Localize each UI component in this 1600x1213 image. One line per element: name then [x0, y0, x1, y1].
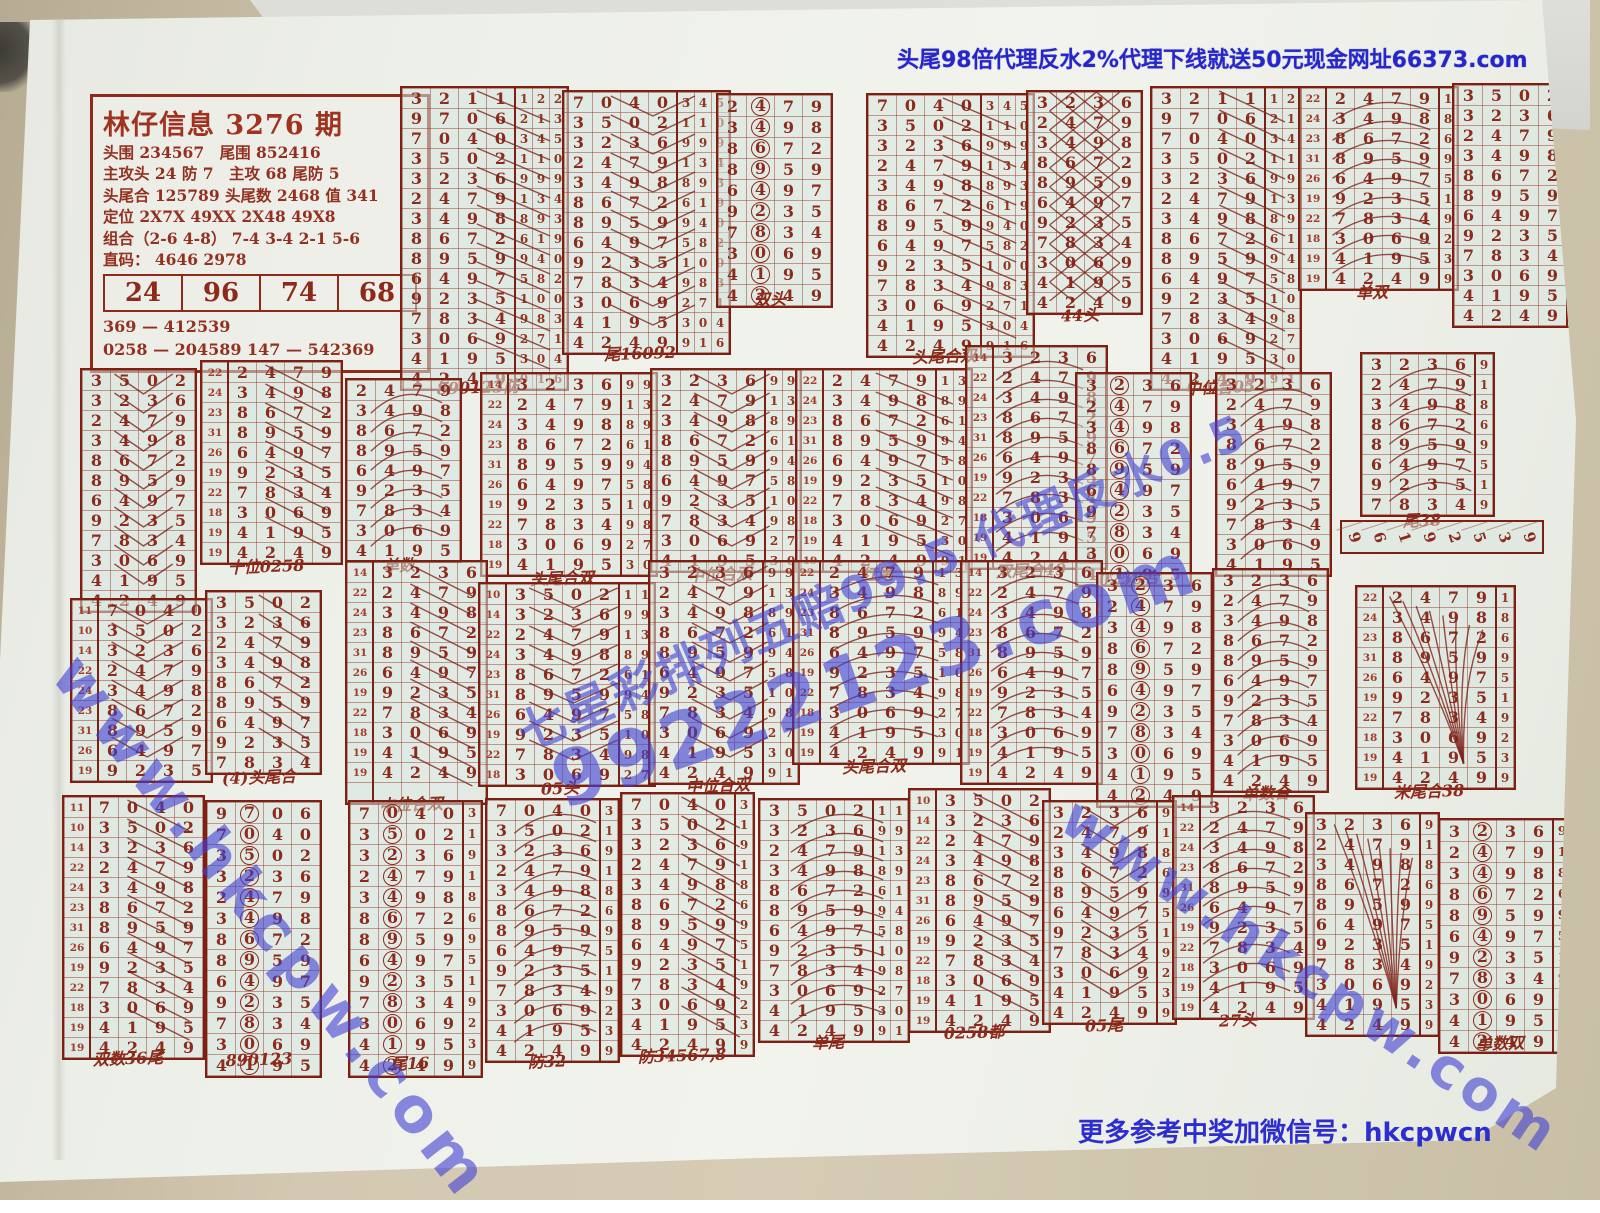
- digit-grid: 3236924791349888672689599649759235178349: [1362, 354, 1493, 515]
- photo-background: 林仔信息 3276 期 头围 234567 尾围 852416 主攻头 24 防…: [0, 0, 1600, 1200]
- number-block: 7040335021323692479134988867268959964975…: [620, 792, 755, 1057]
- number-block: 3502113236992479133498898672618959946497…: [758, 798, 910, 1043]
- digit-grid: 2479349886728959649792357834306941954249: [718, 95, 831, 306]
- ad-banner-top: 头尾98倍代理反水2%代理下线就送50元现金网址66373.com: [897, 42, 1528, 74]
- number-block: 350232362479349886728959649792357834: [205, 590, 322, 775]
- digit-grid: 1035021432362224792434982386723189592664…: [910, 790, 1049, 1031]
- info-line: 主攻头 24 防 7 主攻 68 尾防 5: [103, 163, 419, 184]
- block-label: 米尾合38: [1355, 775, 1504, 804]
- number-block: 3211122970621370403453502110323699924791…: [400, 86, 569, 391]
- digit-grid: 2224792434982386723189592664971992352278…: [202, 362, 341, 563]
- sideways-digit-strip: 96192539: [1340, 520, 1544, 554]
- digit-grid: 3236247934988672895964979235783430694195: [1217, 374, 1330, 575]
- digit-grid: 3236247934988672895964979235783430694195…: [1214, 570, 1327, 791]
- info-line: 定位 2X7X 49XX 2X48 49X8: [103, 206, 419, 227]
- info-box: 林仔信息 3276 期 头围 234567 尾围 852416 主攻头 24 防…: [90, 94, 430, 373]
- block-label: 防32: [485, 1046, 610, 1074]
- digit-grid: 3236992479133498898672618959946497589235…: [652, 370, 800, 571]
- block-label: 单双: [1298, 276, 1447, 305]
- digit-grid: 3502323624793498867289596497923578343069…: [82, 370, 195, 611]
- block-label: (4)头尾合: [205, 762, 314, 790]
- number-block: 2224791243498823867263189599266497519923…: [1355, 585, 1516, 790]
- info-line: 组合（2-6 4-8） 7-4 3-4 2-1 5-6: [103, 228, 419, 249]
- block-label: 头尾合双: [792, 750, 957, 780]
- contact-note: 更多参考中奖加微信号：hkcpwcn: [1078, 1112, 1492, 1149]
- info-line: 直码： 4646 2978: [103, 249, 419, 270]
- number-block: 3502323624793498867289596497923578343069…: [80, 368, 197, 613]
- digit-grid: 350232362479349886728959649792357834: [207, 592, 320, 773]
- number-block: 247934988672895964979235783430694195: [345, 378, 462, 563]
- number-block: 1432362224792434982386723189592664971992…: [345, 560, 488, 805]
- number-block: 3236247934988672895964979235783430694195…: [1026, 90, 1143, 315]
- digit-grid: 3236247934988672895964979235783430694195…: [1028, 92, 1141, 313]
- block-label: 单尾: [758, 1027, 899, 1056]
- info-line: 头尾合 125789 头尾数 2468 值 341: [103, 185, 419, 206]
- digit-grid: 2224791243498823867263189599266497519923…: [1300, 88, 1457, 289]
- digit-grid: 1432362224792434982386723189592664971992…: [347, 562, 486, 803]
- number-block: 1035021432362224792434982386723189592664…: [908, 788, 1051, 1033]
- digit-grid: 7040335021323692479134988867268959964975…: [622, 794, 753, 1055]
- sheet-title: 林仔信息 3276 期: [103, 103, 419, 142]
- block-label: 27头: [1172, 1005, 1305, 1034]
- block-label: 05尾: [1042, 1010, 1167, 1038]
- number-block: 3236992479133498898672618959946497589235…: [650, 368, 802, 573]
- number-block: 3236247934988672895964979235783430694195…: [1212, 568, 1329, 793]
- number-block: 2224791243498823867263189599266497519923…: [1298, 86, 1459, 291]
- block-label: 44头: [1026, 300, 1135, 328]
- hot-number-cell: 96: [181, 276, 259, 310]
- info-footer-line: 0258 — 204589 147 — 542369: [103, 338, 419, 361]
- block-label: 双数36尾: [62, 1043, 195, 1072]
- number-block: 3236924791349888672689599649759235178349…: [1438, 818, 1573, 1054]
- number-block: 2224792434982386723189592664971992352278…: [200, 360, 343, 565]
- info-line: 头围 234567 尾围 852416: [103, 142, 419, 163]
- digit-grid: 3211129706217040343502113236992479133498…: [1152, 88, 1300, 389]
- digit-grid: 7040335021323692479134988867268959964975…: [487, 800, 618, 1061]
- hot-number-cell: 74: [259, 276, 337, 310]
- hot-numbers-table: 24 96 74 68: [103, 274, 417, 312]
- number-block: 2479349886728959649792357834306941954249: [716, 93, 833, 308]
- block-label: 防34567,8: [620, 1040, 745, 1068]
- number-block: 7040345350211032369992479134349889386726…: [562, 90, 731, 355]
- number-block: 7040335021323692479134988867268959964975…: [485, 798, 620, 1063]
- block-label: 890123: [205, 1048, 314, 1071]
- digit-grid: 7040345350211032369992479134349889386726…: [868, 95, 1033, 356]
- block-label: 0258都: [908, 1017, 1041, 1046]
- digit-grid: 3211122970621370403453502110323699924791…: [402, 88, 567, 389]
- number-block: 3211129706217040343502113236992479133498…: [1150, 86, 1302, 391]
- block-label: 双头: [716, 284, 825, 312]
- number-block: 3236924791349888672689599649759235178349: [1360, 352, 1495, 517]
- digit-grid: 247934988672895964979235783430694195: [347, 380, 460, 561]
- digit-grid: 2224791243498823867263189599266497519923…: [1357, 587, 1514, 788]
- digit-grid: 1432369922247913243498892386726131895994…: [482, 374, 656, 575]
- digit-grid: 3502113236992479133498898672618959946497…: [760, 800, 908, 1041]
- digit-grid: 3236924791349888672689599649759235178349…: [1440, 820, 1571, 1052]
- block-label: 尾16092: [562, 337, 719, 366]
- info-footer-line: 369 — 412539: [103, 315, 419, 338]
- digit-grid: 7040345350211032369992479134349889386726…: [564, 92, 729, 353]
- number-block: 7040345350211032369992479134349889386726…: [866, 93, 1035, 358]
- hot-number-cell: 24: [105, 276, 181, 310]
- block-label: 十位0258: [200, 551, 333, 580]
- number-block: 1432369922247913243498892386726131895994…: [480, 372, 658, 577]
